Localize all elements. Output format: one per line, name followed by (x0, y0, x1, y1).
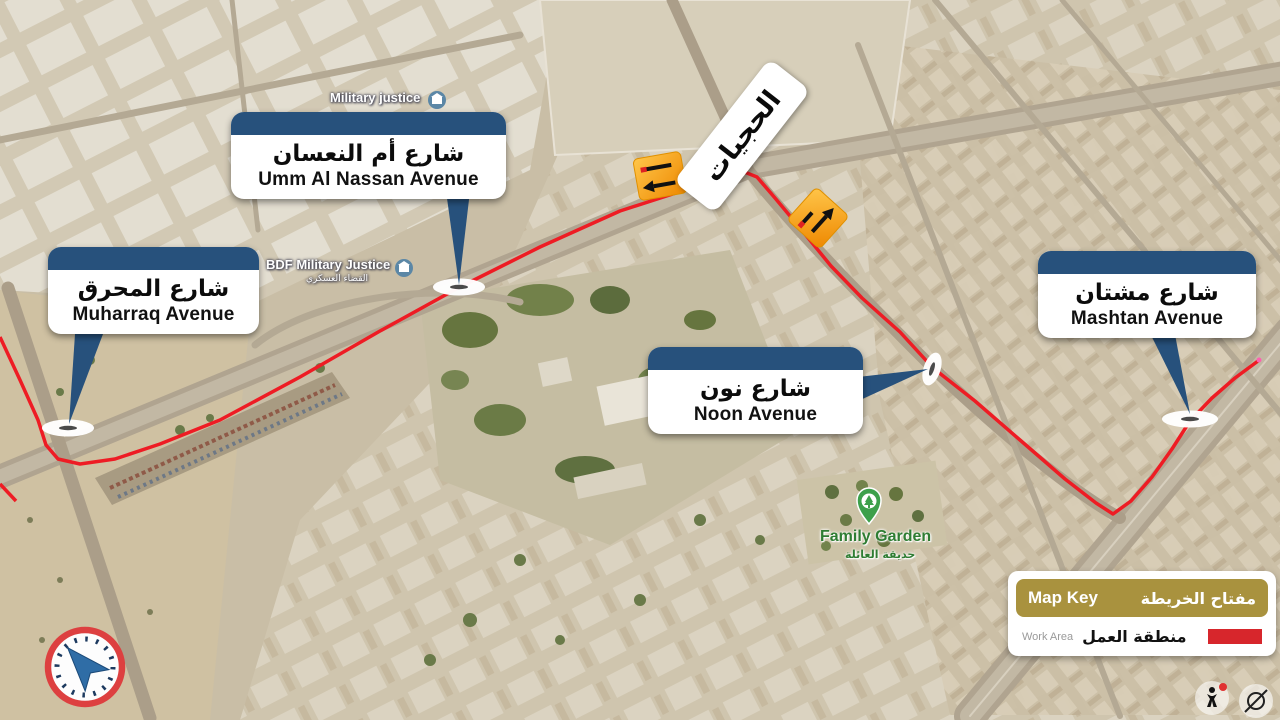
family-garden-label: Family Garden (820, 528, 931, 546)
street-name-english: Mashtan Avenue (1046, 308, 1248, 330)
street-name-arabic: شارع نون (656, 375, 855, 404)
map-key-title-en: Map Key (1028, 588, 1098, 608)
map-key-legend: Map Key مفتاح الخريطة Work Area منطقة ال… (1008, 571, 1276, 656)
street-name-english: Muharraq Avenue (56, 304, 251, 326)
street-marker-mashtan (1162, 411, 1218, 428)
family-garden-arabic-label: حديقة العائلة (845, 548, 915, 561)
callout-umm-al-nassan: شارع أم النعسان Umm Al Nassan Avenue (231, 112, 506, 199)
map-key-title-ar: مفتاح الخريطة (1141, 589, 1256, 608)
work-area-swatch (1208, 629, 1262, 644)
street-marker-muharraq (42, 420, 94, 437)
military-justice-poi-icon (428, 91, 446, 109)
work-area-label-en: Work Area (1022, 631, 1073, 643)
callout-mashtan: شارع مشتان Mashtan Avenue (1038, 251, 1256, 338)
street-name-english: Noon Avenue (656, 404, 855, 426)
callout-header-bar (231, 112, 506, 138)
bdf-military-justice-arabic-label: القضاء العسكري (306, 274, 368, 284)
rotate-view-control[interactable] (1239, 684, 1273, 718)
callout-header-bar (48, 247, 259, 273)
street-name-english: Umm Al Nassan Avenue (239, 169, 498, 191)
route-end-tip (1257, 358, 1262, 363)
military-justice-label: Military justice (330, 90, 420, 105)
bdf-military-justice-poi-icon (395, 259, 413, 277)
legend-item-work-area: Work Area منطقة العمل (1016, 617, 1268, 646)
callout-noon: شارع نون Noon Avenue (648, 347, 863, 434)
pegman-control[interactable] (1195, 681, 1229, 715)
map-screenshot: Al Hajiyat الحجيات شارع أم النعسان Umm A… (0, 0, 1280, 720)
callout-muharraq: شارع المحرق Muharraq Avenue (48, 247, 259, 334)
map-key-header: Map Key مفتاح الخريطة (1016, 579, 1268, 617)
pegman-red-dot (1219, 683, 1227, 691)
compass-icon[interactable] (48, 630, 122, 704)
street-name-arabic: شارع مشتان (1046, 279, 1248, 308)
callout-header-bar (648, 347, 863, 373)
street-name-arabic: شارع أم النعسان (239, 140, 498, 169)
street-name-arabic: شارع المحرق (56, 275, 251, 304)
bdf-military-justice-label: BDF Military Justice (266, 257, 390, 272)
work-area-label-ar: منطقة العمل (1082, 627, 1186, 646)
callout-header-bar (1038, 251, 1256, 277)
